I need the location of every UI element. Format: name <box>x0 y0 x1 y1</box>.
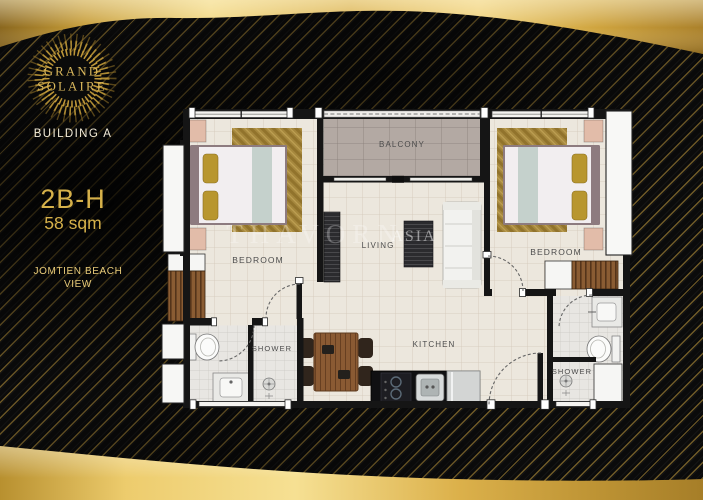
shower-tray-right <box>594 364 622 402</box>
watermark-sub: ASIA <box>391 228 436 245</box>
ac-ledge-right <box>606 111 632 255</box>
label-balcony: BALCONY <box>379 140 425 149</box>
door-leaf-bedroom-left <box>297 283 303 319</box>
door-leaf-bedroom-right <box>484 258 490 293</box>
pillow <box>203 191 218 220</box>
bed-runner <box>518 147 538 223</box>
pillow <box>572 154 587 183</box>
grand-solaire-logo: GRAND SOLAIRE <box>12 23 132 133</box>
vanity-right <box>588 297 622 327</box>
door-leaf-entrance <box>538 353 544 403</box>
ledge-left-bottom <box>162 364 184 403</box>
bed-runner <box>252 147 272 223</box>
view-line2: VIEW <box>0 279 156 292</box>
label-shower-left: SHOWER <box>252 344 292 353</box>
pillow <box>572 191 587 220</box>
label-bedroom-left: BEDROOM <box>232 255 284 265</box>
view-label: JOMTIEN BEACH VIEW <box>0 266 156 291</box>
floorplan: BEDROOM BEDROOM BALCONY LIVING KITCHEN S… <box>155 100 645 422</box>
label-shower-right: SHOWER <box>552 367 592 376</box>
placemat <box>338 370 350 379</box>
dining-chair <box>358 338 373 358</box>
info-panel: GRAND SOLAIRE BUILDING A 2B-H 58 sqm JOM… <box>0 0 150 500</box>
bed-right <box>497 120 603 250</box>
building-label: BUILDING A <box>0 128 146 140</box>
ac-ledge-left <box>163 145 184 252</box>
view-line1: JOMTIEN BEACH <box>0 266 156 279</box>
label-kitchen: KITCHEN <box>413 340 456 349</box>
vanity-left <box>213 373 250 402</box>
page: GRAND SOLAIRE BUILDING A 2B-H 58 sqm JOM… <box>0 0 703 500</box>
nightstand <box>584 228 603 250</box>
wardrobe-right <box>545 261 618 289</box>
dining-table <box>314 333 358 391</box>
pillow <box>203 154 218 183</box>
sofa <box>443 202 481 288</box>
logo-text-grand: GRAND <box>44 65 101 79</box>
nightstand <box>584 120 603 142</box>
balcony-sliding-door <box>410 178 472 181</box>
logo-text-solaire: SOLAIRE <box>37 80 106 94</box>
balcony-sliding-door <box>334 178 386 181</box>
watermark-main: THAVORN <box>226 219 404 249</box>
unit-type-label: 2B-H <box>0 184 146 215</box>
placemat <box>322 345 334 354</box>
label-bedroom-right: BEDROOM <box>530 247 582 257</box>
toilet-left <box>188 334 219 360</box>
unit-area-label: 58 sqm <box>0 213 146 234</box>
ledge-left-lower <box>162 324 184 359</box>
kitchen-counter <box>371 371 480 404</box>
